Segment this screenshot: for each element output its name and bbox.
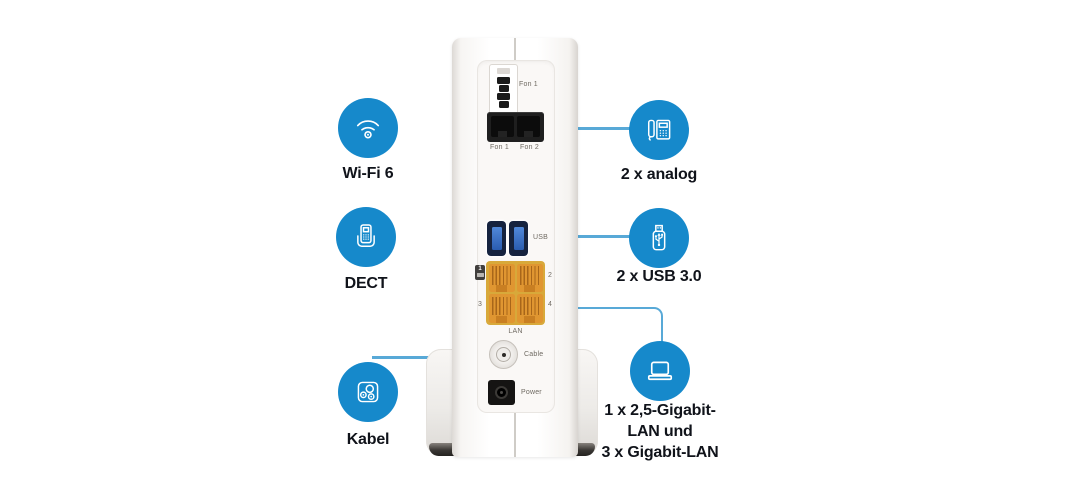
lan-port3-number: 3 xyxy=(478,301,482,308)
wifi-icon xyxy=(351,111,385,145)
dect-callout-label: DECT xyxy=(311,273,421,294)
cable-socket-icon xyxy=(351,375,385,409)
usb-label: USB xyxy=(533,234,548,241)
usb-stick-icon xyxy=(642,221,676,255)
analog-phone-icon xyxy=(642,113,676,147)
lan-callout xyxy=(630,341,690,401)
lan-port-1 xyxy=(489,264,515,293)
fon2-rj11-port xyxy=(517,116,540,137)
lan-port1-badge: 1 xyxy=(475,265,485,280)
product-diagram: Fon 1 Fon 1 Fon 2 USB 1 2 3 4 LAN Cable … xyxy=(0,0,1082,500)
usb-port-2 xyxy=(509,221,528,256)
lan-port2-number: 2 xyxy=(548,272,552,279)
connector-line-analog xyxy=(577,127,632,130)
analog-callout xyxy=(629,100,689,160)
tae-contacts xyxy=(497,77,510,108)
lan-callout-label-line2: LAN und xyxy=(585,421,735,442)
lan-port1-badge-mark xyxy=(477,273,484,277)
lan-ports xyxy=(486,261,545,325)
wifi-callout xyxy=(338,98,398,158)
fon-rj11-ports xyxy=(487,112,544,142)
lan-label: LAN xyxy=(486,328,545,335)
lan-port-3 xyxy=(489,294,515,323)
lan-port-2 xyxy=(517,264,543,293)
connector-line-usb xyxy=(577,235,632,238)
dect-callout xyxy=(336,207,396,267)
usb-callout-label: 2 x USB 3.0 xyxy=(594,266,724,287)
laptop-icon xyxy=(642,353,678,389)
tower-seam-top xyxy=(514,38,516,62)
lan-port4-number: 4 xyxy=(548,301,552,308)
cable-coax-port xyxy=(489,340,518,369)
power-port xyxy=(488,380,515,405)
connector-line-lan xyxy=(577,307,663,345)
lan-callout-label-line1: 1 x 2,5-Gigabit- xyxy=(585,400,735,421)
usb-ports xyxy=(487,221,528,256)
kabel-callout-label: Kabel xyxy=(313,429,423,450)
dect-phone-icon xyxy=(349,220,383,254)
fon2-label: Fon 2 xyxy=(517,144,542,151)
wifi-callout-label: Wi-Fi 6 xyxy=(313,163,423,184)
kabel-callout xyxy=(338,362,398,422)
tae-slot xyxy=(497,68,510,74)
usb-port-1 xyxy=(487,221,506,256)
fon1-label: Fon 1 xyxy=(487,144,512,151)
tae-port-label: Fon 1 xyxy=(519,81,538,88)
fon1-rj11-port xyxy=(491,116,514,137)
usb-callout xyxy=(629,208,689,268)
lan-port-4 xyxy=(517,294,543,323)
cable-label: Cable xyxy=(524,351,543,358)
lan-callout-label: 1 x 2,5-Gigabit- LAN und 3 x Gigabit-LAN xyxy=(585,400,735,463)
power-label: Power xyxy=(521,389,542,396)
analog-callout-label: 2 x analog xyxy=(599,164,719,185)
lan-port1-badge-number: 1 xyxy=(478,266,481,272)
tae-fon-port xyxy=(489,64,518,115)
lan-callout-label-line3: 3 x Gigabit-LAN xyxy=(585,442,735,463)
